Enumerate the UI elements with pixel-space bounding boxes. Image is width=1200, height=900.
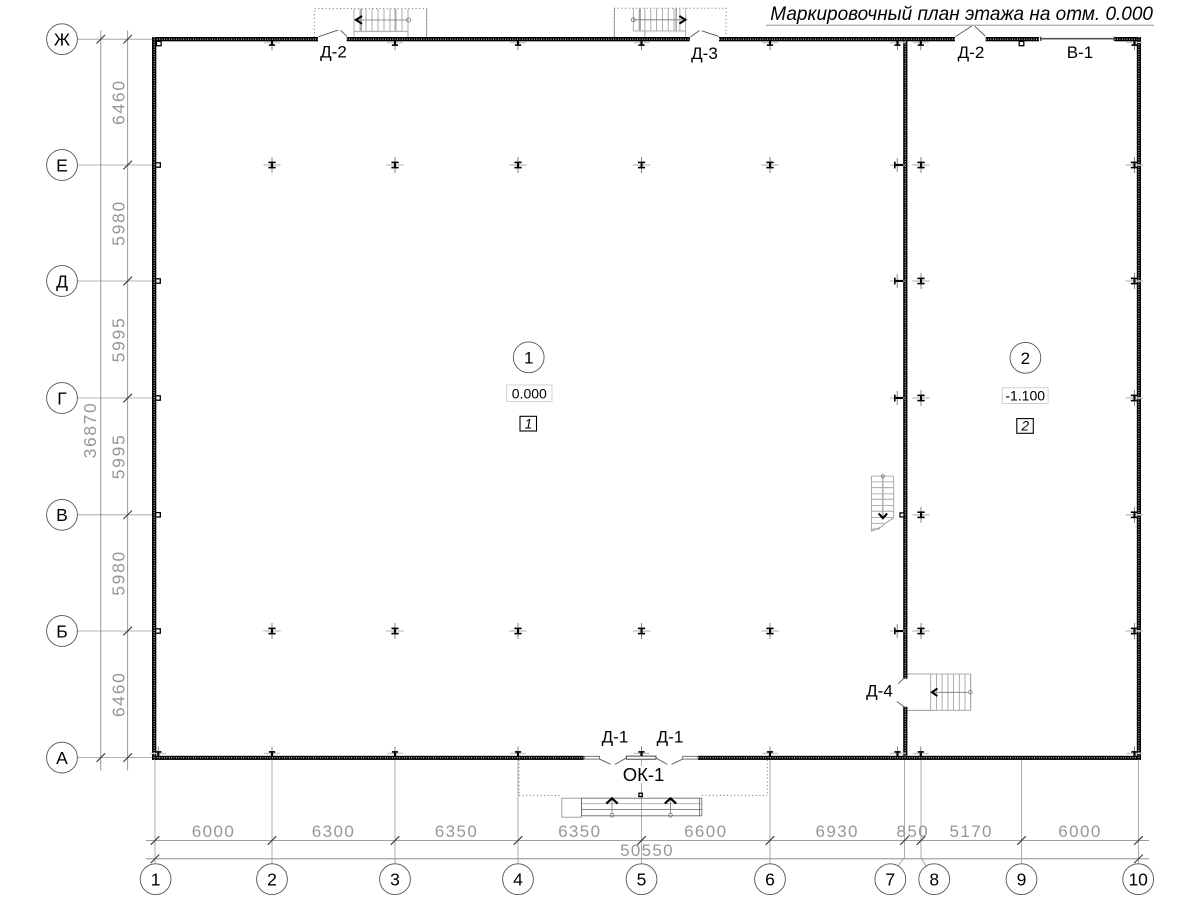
svg-text:6600: 6600 <box>684 822 727 841</box>
svg-text:4: 4 <box>513 870 523 890</box>
svg-text:Д-1: Д-1 <box>602 728 629 747</box>
svg-text:36870: 36870 <box>80 402 100 459</box>
svg-text:Ж: Ж <box>54 30 70 50</box>
svg-text:5170: 5170 <box>949 822 992 841</box>
svg-text:10: 10 <box>1128 870 1148 890</box>
svg-text:А: А <box>56 748 68 768</box>
svg-text:9: 9 <box>1017 870 1027 890</box>
svg-text:6930: 6930 <box>815 822 858 841</box>
svg-text:6460: 6460 <box>108 671 128 717</box>
svg-text:6: 6 <box>765 870 775 890</box>
svg-text:6000: 6000 <box>1058 822 1101 841</box>
svg-text:Д-3: Д-3 <box>691 44 718 63</box>
svg-text:5995: 5995 <box>108 317 128 363</box>
svg-text:Д-4: Д-4 <box>866 682 893 701</box>
svg-text:Д-2: Д-2 <box>958 43 985 62</box>
svg-text:6300: 6300 <box>312 822 355 841</box>
svg-text:50550: 50550 <box>620 841 674 860</box>
svg-text:2: 2 <box>1020 419 1029 434</box>
svg-text:6460: 6460 <box>108 79 128 125</box>
svg-text:6350: 6350 <box>558 822 601 841</box>
svg-text:ОК-1: ОК-1 <box>623 764 665 785</box>
svg-text:5980: 5980 <box>108 200 128 246</box>
svg-text:2: 2 <box>267 870 277 890</box>
svg-text:1: 1 <box>524 348 533 367</box>
svg-text:Д-1: Д-1 <box>657 728 684 747</box>
svg-text:3: 3 <box>390 870 400 890</box>
svg-text:7: 7 <box>885 870 895 890</box>
svg-text:5: 5 <box>637 870 647 890</box>
svg-text:0.000: 0.000 <box>512 385 547 401</box>
svg-text:6350: 6350 <box>435 822 478 841</box>
svg-text:8: 8 <box>929 870 939 890</box>
svg-text:Маркировочный план этажа на от: Маркировочный план этажа на отм. 0.000 <box>770 4 1153 25</box>
svg-text:1: 1 <box>151 870 161 890</box>
svg-text:Д: Д <box>56 271 68 291</box>
svg-text:В: В <box>56 505 68 525</box>
svg-text:6000: 6000 <box>192 822 235 841</box>
svg-text:В-1: В-1 <box>1067 43 1093 62</box>
svg-text:-1.100: -1.100 <box>1005 388 1045 404</box>
svg-text:2: 2 <box>1021 349 1030 368</box>
svg-text:Б: Б <box>56 621 67 641</box>
svg-text:Г: Г <box>57 388 67 408</box>
svg-text:850: 850 <box>897 822 930 841</box>
svg-text:5980: 5980 <box>108 550 128 596</box>
svg-text:5995: 5995 <box>108 434 128 480</box>
svg-text:1: 1 <box>525 416 533 431</box>
svg-text:Е: Е <box>56 155 68 175</box>
svg-text:Д-2: Д-2 <box>320 43 347 62</box>
